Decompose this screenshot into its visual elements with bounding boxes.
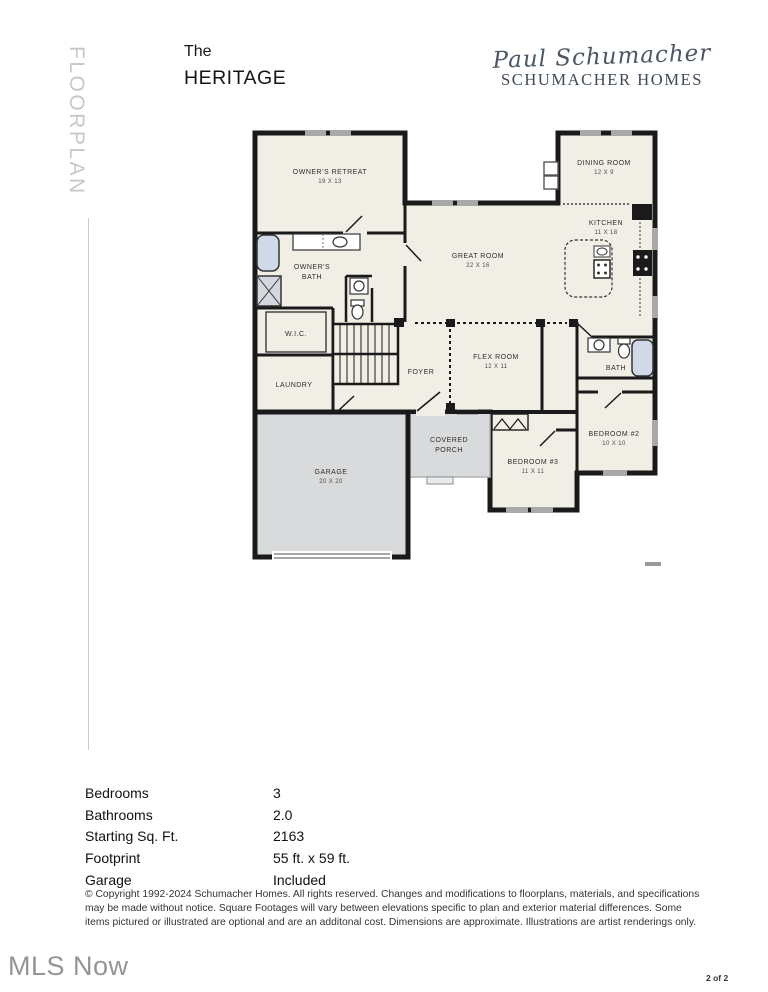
toilet-icon: [351, 300, 364, 319]
range-icon: [633, 250, 652, 276]
spec-value: 55 ft. x 59 ft.: [273, 850, 350, 866]
window-icon: [330, 130, 351, 136]
refrigerator-icon: [632, 204, 652, 220]
window-icon: [531, 507, 553, 513]
room-label: BEDROOM #2: [589, 431, 640, 438]
spec-value: 2163: [273, 828, 304, 844]
plan-title: The HERITAGE: [184, 43, 286, 90]
room-dims: 10 X 10: [602, 441, 626, 447]
room-label: BEDROOM #3: [508, 459, 559, 466]
window-icon: [580, 130, 601, 136]
spec-value: 2.0: [273, 807, 292, 823]
room-dims: 22 X 16: [466, 263, 490, 269]
window-icon: [432, 200, 453, 206]
spec-row: Footprint 55 ft. x 59 ft.: [85, 847, 350, 869]
spec-label: Starting Sq. Ft.: [85, 828, 273, 844]
spec-value: 3: [273, 785, 281, 801]
room-label: COVERED: [430, 437, 468, 444]
room-dims: 11 X 11: [522, 469, 545, 475]
room-label: LAUNDRY: [276, 382, 313, 389]
shower-icon: [257, 276, 281, 306]
window-icon: [652, 420, 658, 446]
room-label: GARAGE: [315, 469, 348, 476]
room-label: OWNER'S: [294, 264, 330, 271]
sink-icon: [594, 340, 604, 350]
cooktop-icon: [594, 260, 610, 278]
room-label: OWNER'S RETREAT: [293, 169, 368, 176]
plan-title-name: HERITAGE: [184, 67, 286, 90]
floorplan-side-label: FLOORPLAN: [64, 46, 104, 196]
room-label: GREAT ROOM: [452, 253, 504, 260]
sink-icon: [333, 237, 347, 247]
spec-row: Bedrooms 3: [85, 782, 350, 804]
watermark: MLS Now: [8, 951, 129, 982]
scale-mark: [645, 562, 661, 566]
room-dims: 12 X 9: [594, 170, 614, 176]
spec-label: Bathrooms: [85, 807, 273, 823]
window-icon: [506, 507, 528, 513]
room-label: DINING ROOM: [577, 160, 631, 167]
room-dims: 20 X 20: [319, 479, 343, 485]
porch-step: [427, 477, 453, 484]
window-icon: [652, 228, 658, 250]
garage-door: [272, 551, 392, 560]
window-icon: [603, 470, 627, 476]
vertical-divider-line: [88, 218, 89, 750]
brand-logo: Paul Schumacher SCHUMACHER HOMES: [468, 44, 736, 90]
room-label: BATH: [302, 274, 322, 281]
floorplan-drawing: OWNER'S RETREAT 19 X 13 GREAT ROOM 22 X …: [238, 116, 674, 572]
window-icon: [457, 200, 478, 206]
window-icon: [652, 296, 658, 318]
spec-row: Starting Sq. Ft. 2163: [85, 825, 350, 847]
bay-window-icon: [544, 162, 558, 189]
bathtub-icon: [632, 340, 653, 376]
spec-value: Included: [273, 872, 326, 888]
room-label: KITCHEN: [589, 220, 623, 227]
room-label: FLEX ROOM: [473, 354, 519, 361]
room-dims: 19 X 13: [318, 179, 342, 185]
bathtub-icon: [257, 235, 279, 271]
spec-label: Bedrooms: [85, 785, 273, 801]
toilet-icon: [618, 338, 630, 358]
window-icon: [305, 130, 326, 136]
room-label: BATH: [606, 365, 626, 372]
spec-label: Garage: [85, 872, 273, 888]
room-label: FOYER: [408, 369, 435, 376]
page-indicator: 2 of 2: [706, 973, 728, 983]
room-dims: 11 X 18: [594, 230, 617, 236]
spec-label: Footprint: [85, 850, 273, 866]
closet-bifold-icon: [492, 414, 528, 430]
spec-row: Bathrooms 2.0: [85, 804, 350, 826]
kitchen-island: [565, 240, 612, 297]
vanity: [293, 234, 360, 250]
stairs: [333, 318, 404, 384]
plan-title-prefix: The: [184, 43, 286, 61]
room-label: PORCH: [435, 447, 463, 454]
floorplan-side-label-text: FLOORPLAN: [64, 46, 88, 196]
room-label: W.I.C.: [285, 331, 307, 338]
window-icon: [611, 130, 632, 136]
disclaimer-text: © Copyright 1992-2024 Schumacher Homes. …: [85, 888, 701, 931]
sink-icon: [354, 281, 364, 291]
room-dims: 12 X 11: [484, 364, 507, 370]
specs-table: Bedrooms 3 Bathrooms 2.0 Starting Sq. Ft…: [85, 782, 350, 890]
